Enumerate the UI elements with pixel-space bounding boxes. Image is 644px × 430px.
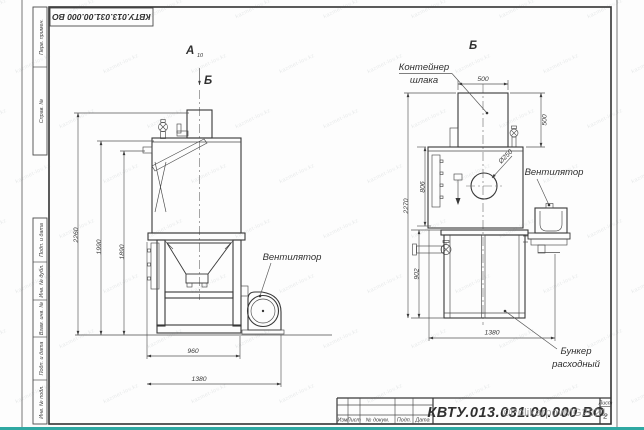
dim-1990: 1990 — [96, 239, 103, 254]
front-view-letter-sub: 10 — [197, 53, 204, 59]
side-field-perv-primen: Перв. примен. — [39, 19, 45, 55]
slag-container-label-line2: шлака — [410, 75, 438, 86]
drawing-sheet: kazmet-lov.kzkazmet-lov.kzkazmet-lov.kzk… — [0, 0, 644, 430]
dim-960: 960 — [187, 348, 199, 355]
front-left-post — [157, 240, 165, 326]
copyright-watermark: ©PolikarpovMG2021 — [502, 407, 607, 419]
b-dimensions: 2270 806 902 1380 — [403, 93, 555, 341]
side-field-podp-data-1: Подп. и дата — [39, 223, 45, 257]
engineering-drawing: КВТУ.013.031.00.000 ВО Перв. примен. Спр… — [0, 0, 644, 430]
dim-902: 902 — [414, 268, 421, 280]
sheet-frame: КВТУ.013.031.00.000 ВО Перв. примен. Спр… — [22, 0, 617, 427]
front-valve — [159, 120, 168, 139]
front-base-member — [157, 325, 241, 333]
front-fan-leader — [260, 263, 271, 296]
front-side-stub — [143, 147, 152, 153]
front-chute — [152, 139, 207, 171]
drawing-border — [49, 7, 611, 424]
b-level-sensor — [454, 174, 462, 205]
slag-container-label-line1: Контейнер — [399, 62, 449, 73]
front-hopper — [167, 243, 231, 287]
dim-2260: 2260 — [73, 227, 80, 243]
side-columns-bottom: Подп. и дата Инв. № дубл. Взам. инв. № П… — [33, 218, 47, 424]
dim-1890: 1890 — [119, 244, 126, 259]
top-designation-box: КВТУ.013.031.00.000 ВО — [50, 8, 153, 26]
dim-500-width: 500 — [477, 76, 489, 83]
b-door-strip — [432, 155, 443, 207]
bunker-label-line1: Бункер — [560, 346, 591, 357]
side-columns-top: Перв. примен. Справ. № — [33, 7, 47, 155]
b-container-valve — [510, 126, 518, 147]
front-fan-label: Вентилятор — [263, 252, 322, 263]
side-field-vzam-inv: Взам. инв. № — [39, 302, 45, 336]
side-field-inv-dubl: Инв. № дубл. — [39, 264, 45, 297]
b-fan — [523, 204, 570, 254]
b-view: Б Контейнер шлака 500 — [399, 40, 601, 370]
dim-1380-b: 1380 — [484, 330, 499, 337]
top-designation-text: КВТУ.013.031.00.000 ВО — [52, 12, 151, 22]
dim-806: 806 — [420, 181, 427, 193]
bunker-leader — [505, 311, 557, 349]
front-flange-band — [148, 233, 245, 240]
front-crossbeam — [165, 292, 233, 298]
front-fan — [241, 286, 284, 334]
side-field-podp-data-2: Подп. и дата — [39, 342, 45, 376]
front-right-post — [233, 240, 241, 326]
front-view: А 10 Б — [73, 45, 332, 387]
front-view-letter: А — [185, 45, 194, 57]
stamp-sheet-word: Лист — [598, 401, 613, 407]
section-b-label: Б — [204, 75, 212, 87]
dim-2270: 2270 — [403, 198, 410, 214]
b-fan-leader — [537, 179, 549, 205]
side-field-sprav-n: Справ. № — [39, 99, 45, 124]
front-dimensions: 2260 1990 1890 960 1380 — [73, 113, 281, 387]
b-fan-label: Вентилятор — [525, 167, 584, 178]
b-bunker-rim — [441, 230, 528, 235]
b-view-letter: Б — [469, 40, 477, 52]
bunker-label-line2: расходный — [551, 359, 601, 370]
stamp-col-list: Лист — [346, 418, 361, 424]
dim-500-height: 500 — [542, 114, 549, 126]
b-drain-pipe — [413, 241, 452, 256]
dim-1380-front: 1380 — [191, 376, 206, 383]
b-bunker — [444, 235, 525, 318]
stamp-col-dokum: № докум. — [366, 418, 390, 424]
side-field-inv-podl: Инв. № подл. — [39, 385, 45, 418]
b-container-stub — [450, 128, 458, 147]
front-elbow-pipe — [177, 124, 188, 136]
stamp-col-podp: Подп. — [397, 418, 411, 424]
front-body — [152, 138, 241, 233]
